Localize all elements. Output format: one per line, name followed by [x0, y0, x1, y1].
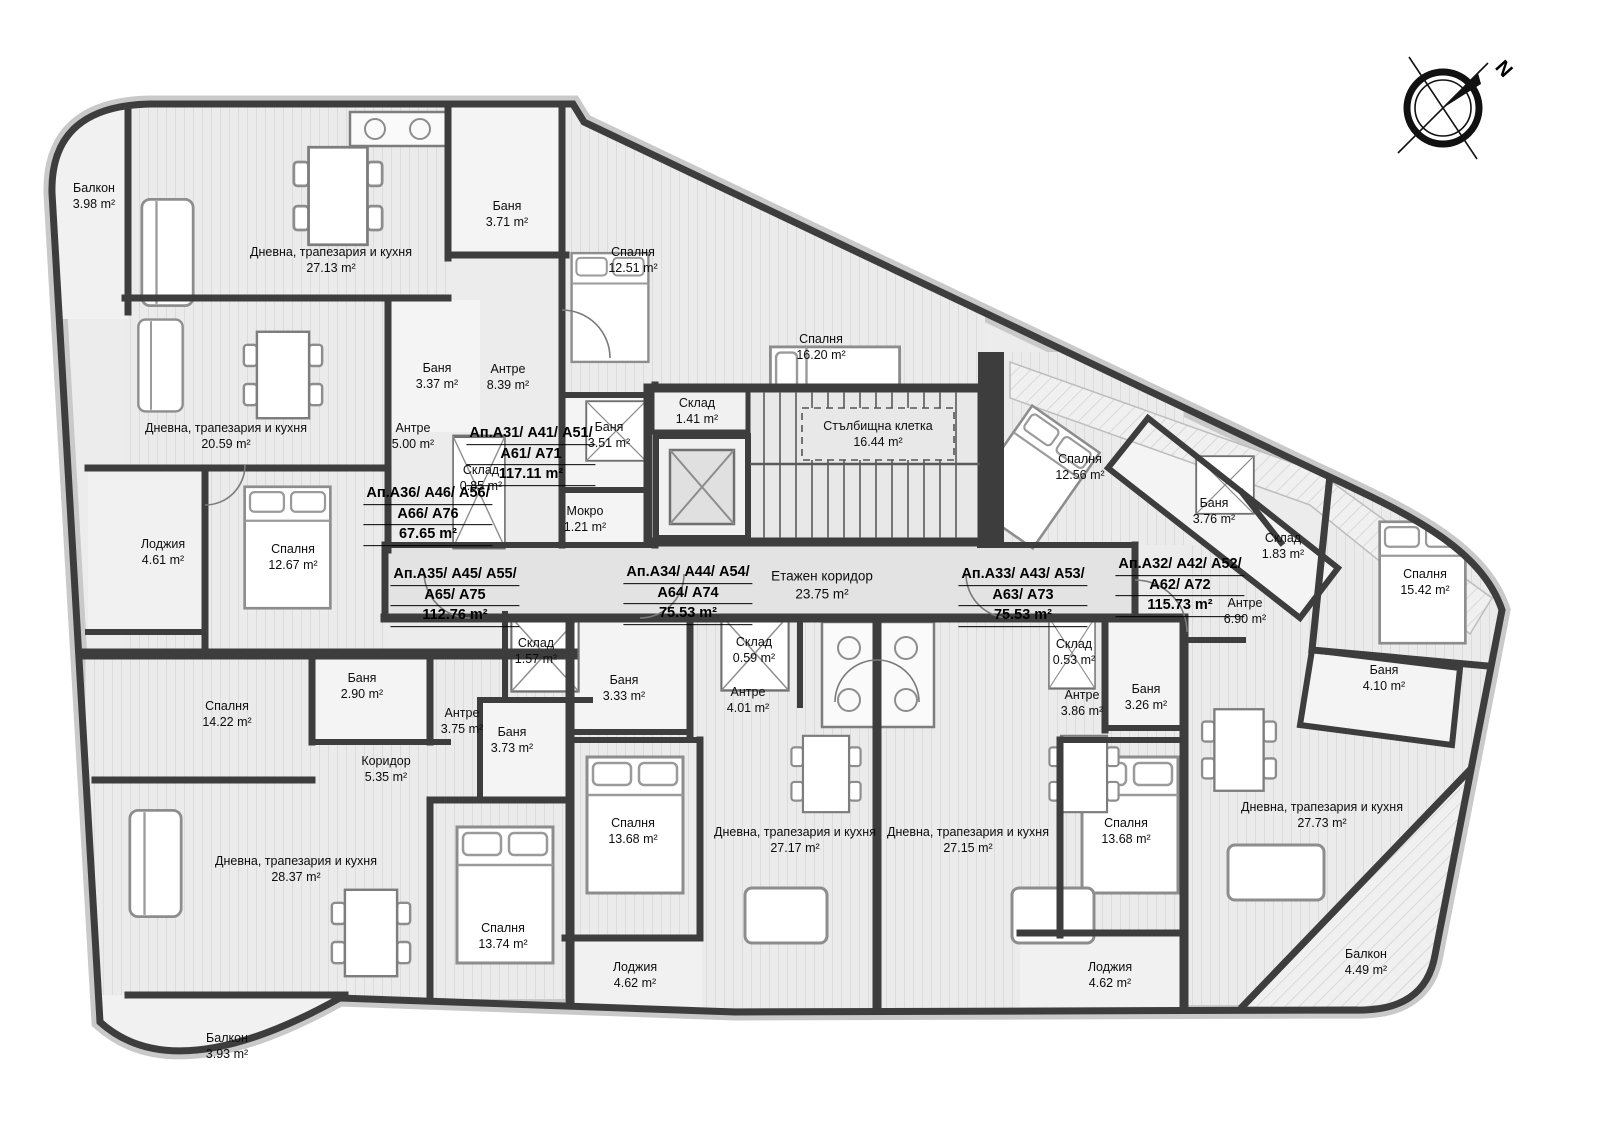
compass-icon [1398, 57, 1488, 159]
stair-label-box [802, 408, 954, 460]
floor-plan-page: N Балкон3.98 m²Дневна, трапезария и кухн… [0, 0, 1600, 1143]
storage-1-41-room [652, 390, 748, 432]
interior [52, 104, 1529, 1060]
floor-plan-drawing [0, 0, 1600, 1143]
elevator [656, 436, 748, 538]
stair-elevator-block [648, 388, 982, 542]
